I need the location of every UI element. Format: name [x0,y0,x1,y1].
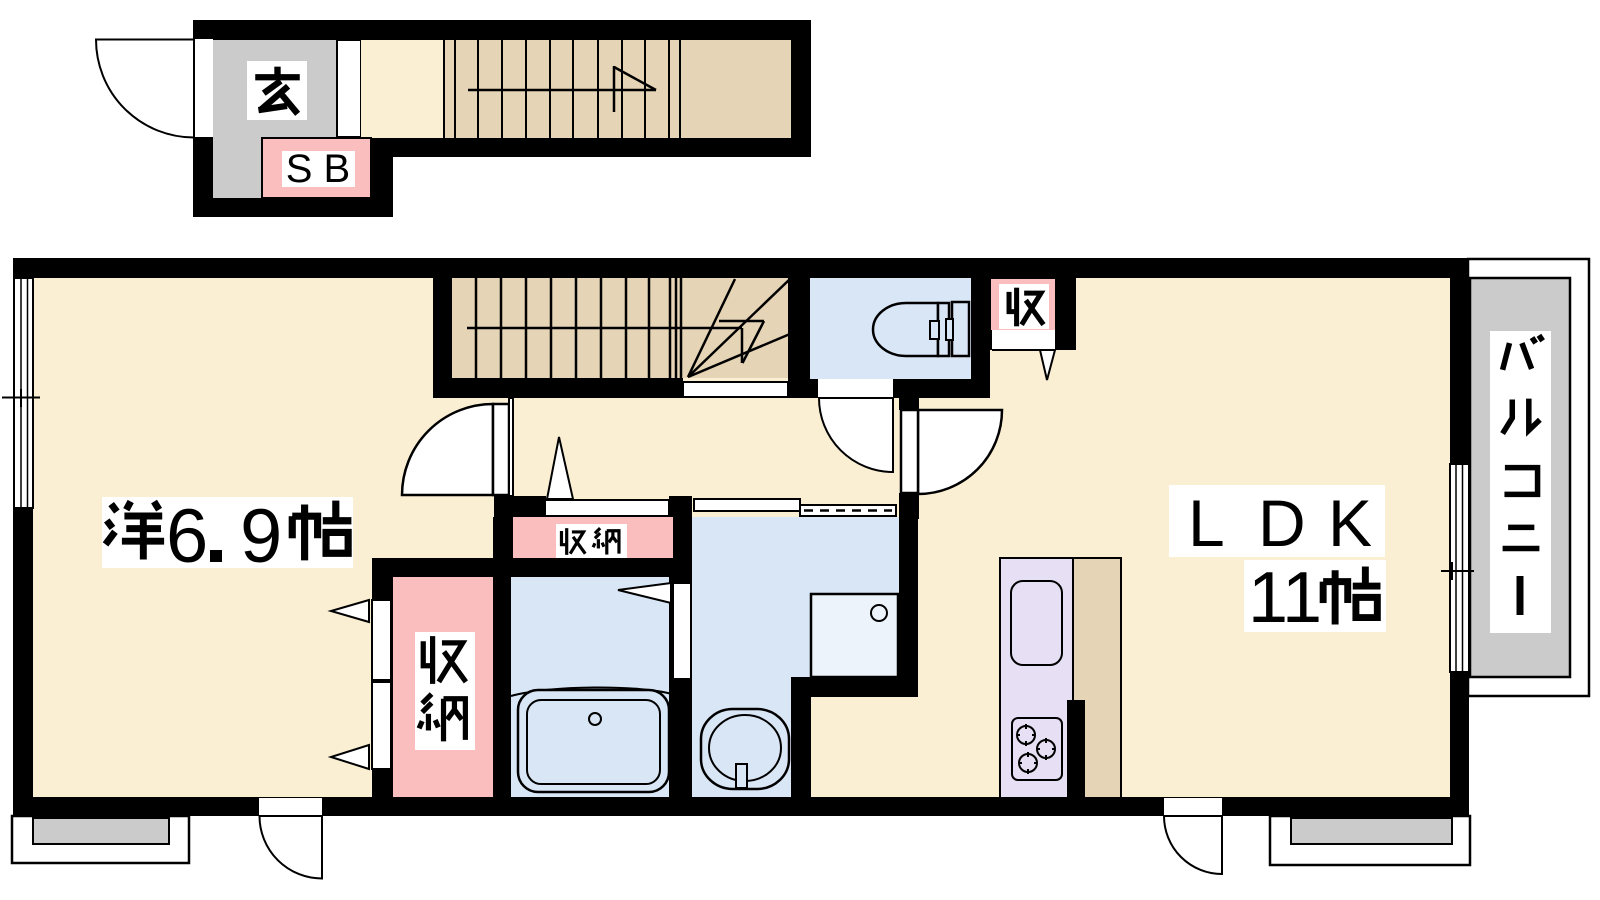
svg-text:6: 6 [166,494,208,579]
svg-text:D: D [1258,486,1306,560]
svg-text:1: 1 [1282,558,1322,638]
svg-text:9: 9 [240,494,282,579]
svg-text:S B: S B [286,147,350,191]
svg-text:L: L [1188,486,1225,560]
svg-text:K: K [1328,486,1372,560]
